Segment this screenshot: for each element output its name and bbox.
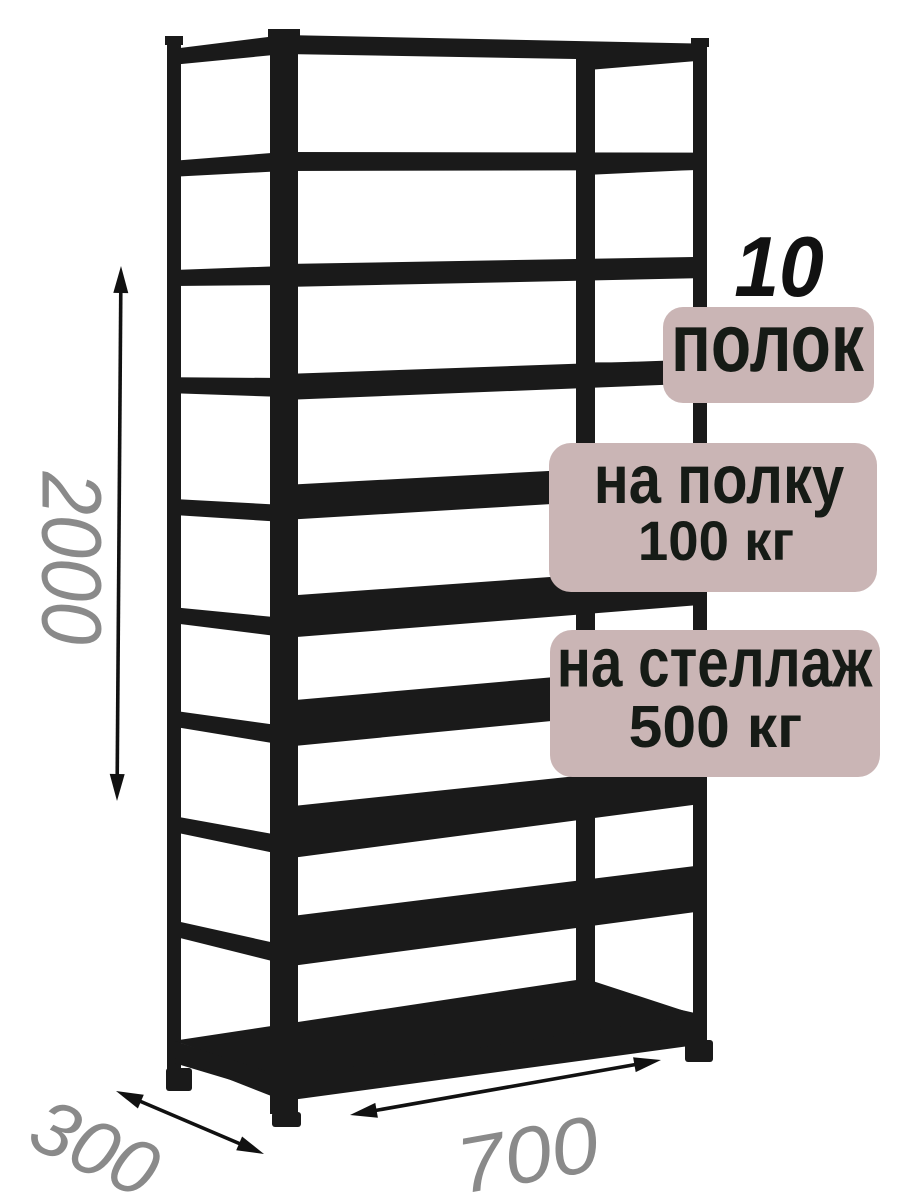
svg-text:500 кг: 500 кг bbox=[629, 694, 803, 760]
svg-text:700: 700 bbox=[450, 1100, 605, 1200]
svg-text:на стеллаж: на стеллаж bbox=[557, 625, 874, 702]
svg-text:полок: полок bbox=[671, 296, 864, 389]
svg-text:300: 300 bbox=[17, 1082, 171, 1200]
svg-text:100 кг: 100 кг bbox=[638, 510, 794, 573]
svg-text:на полку: на полку bbox=[594, 440, 845, 518]
svg-text:2000: 2000 bbox=[24, 471, 118, 645]
